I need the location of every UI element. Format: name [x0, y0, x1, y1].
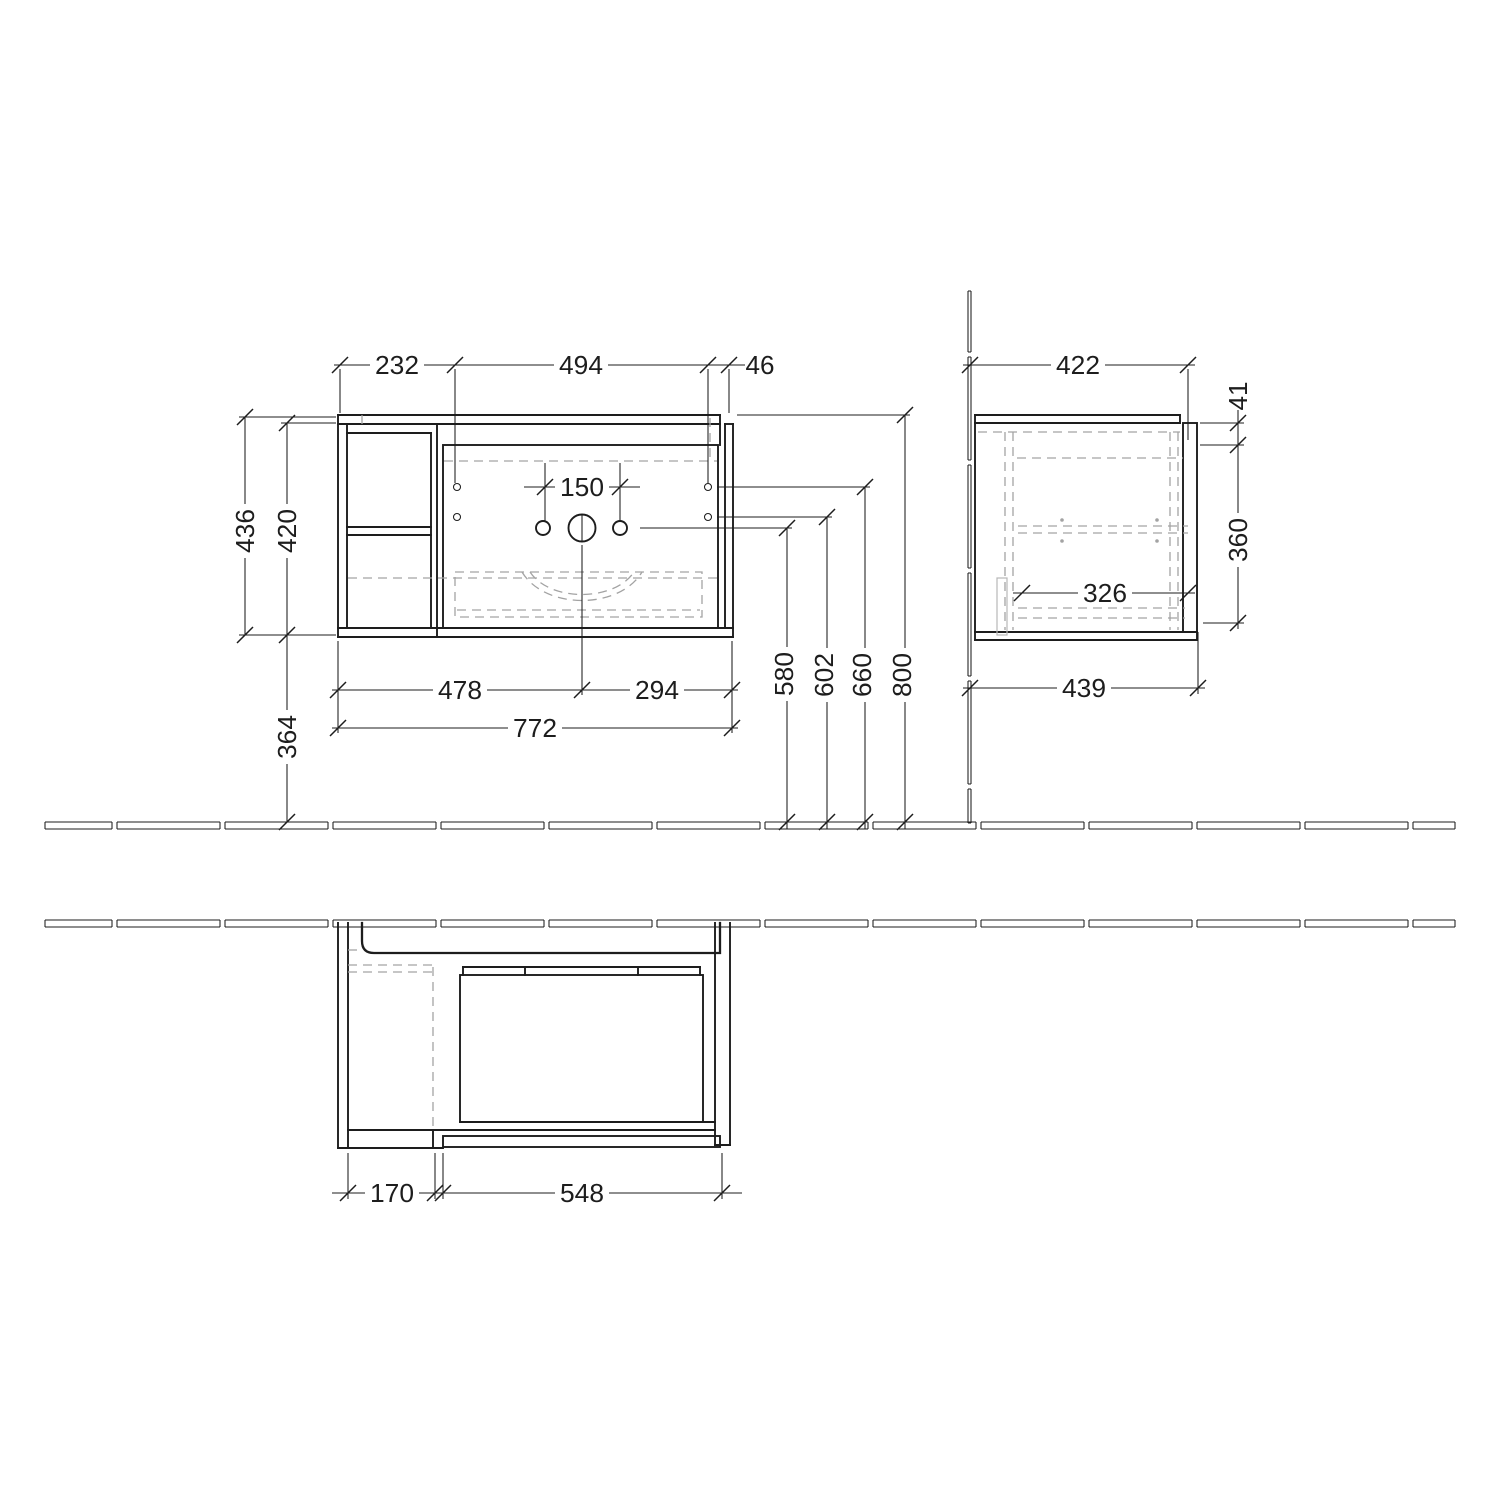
dim-mount-heights: 580 602 660 800 — [640, 407, 917, 830]
dim-label-800: 800 — [887, 653, 917, 697]
dim-label-548: 548 — [560, 1178, 604, 1208]
dim-top-widths: 232 494 46 — [332, 350, 775, 483]
floor-line-upper — [45, 822, 1455, 829]
dim-side-view: 422 41 360 326 439 — [962, 350, 1253, 703]
front-view — [338, 415, 733, 637]
floor-line-lower — [45, 920, 1455, 927]
dim-label-422: 422 — [1056, 350, 1100, 380]
dim-label-41: 41 — [1223, 382, 1253, 411]
dim-label-478: 478 — [438, 675, 482, 705]
dim-label-360: 360 — [1223, 518, 1253, 562]
plan-view — [338, 923, 730, 1148]
dimensions: 232 494 46 436 420 — [230, 350, 1253, 1208]
dim-label-46: 46 — [746, 350, 775, 380]
dim-label-436: 436 — [230, 509, 260, 553]
dim-label-494: 494 — [559, 350, 603, 380]
technical-drawing-page: 232 494 46 436 420 — [0, 0, 1500, 1500]
dimension-drawing-canvas: 232 494 46 436 420 — [0, 0, 1500, 1500]
dim-label-772: 772 — [513, 713, 557, 743]
tap-hole-left — [536, 521, 550, 535]
wall-line — [968, 291, 971, 823]
dim-label-150: 150 — [560, 472, 604, 502]
dim-label-170: 170 — [370, 1178, 414, 1208]
dim-label-326: 326 — [1083, 578, 1127, 608]
dim-bottom-widths: 478 294 772 — [330, 545, 740, 743]
dim-label-580: 580 — [769, 652, 799, 696]
tap-hole-right — [613, 521, 627, 535]
dim-label-439: 439 — [1062, 673, 1106, 703]
plan-carcass — [338, 923, 730, 1148]
dim-left-heights: 436 420 364 — [230, 409, 336, 830]
dim-label-602: 602 — [809, 653, 839, 697]
plan-hidden-lines — [348, 950, 433, 1130]
dim-tap-holes: 150 — [524, 463, 640, 521]
dim-plan-view: 170 548 — [332, 1153, 742, 1208]
dim-label-420: 420 — [272, 509, 302, 553]
dim-label-660: 660 — [847, 653, 877, 697]
basin-body-plan — [460, 975, 703, 1122]
dim-label-232: 232 — [375, 350, 419, 380]
dim-label-294: 294 — [635, 675, 679, 705]
drawer-front-plan — [443, 1136, 720, 1147]
dim-label-364: 364 — [272, 715, 302, 759]
